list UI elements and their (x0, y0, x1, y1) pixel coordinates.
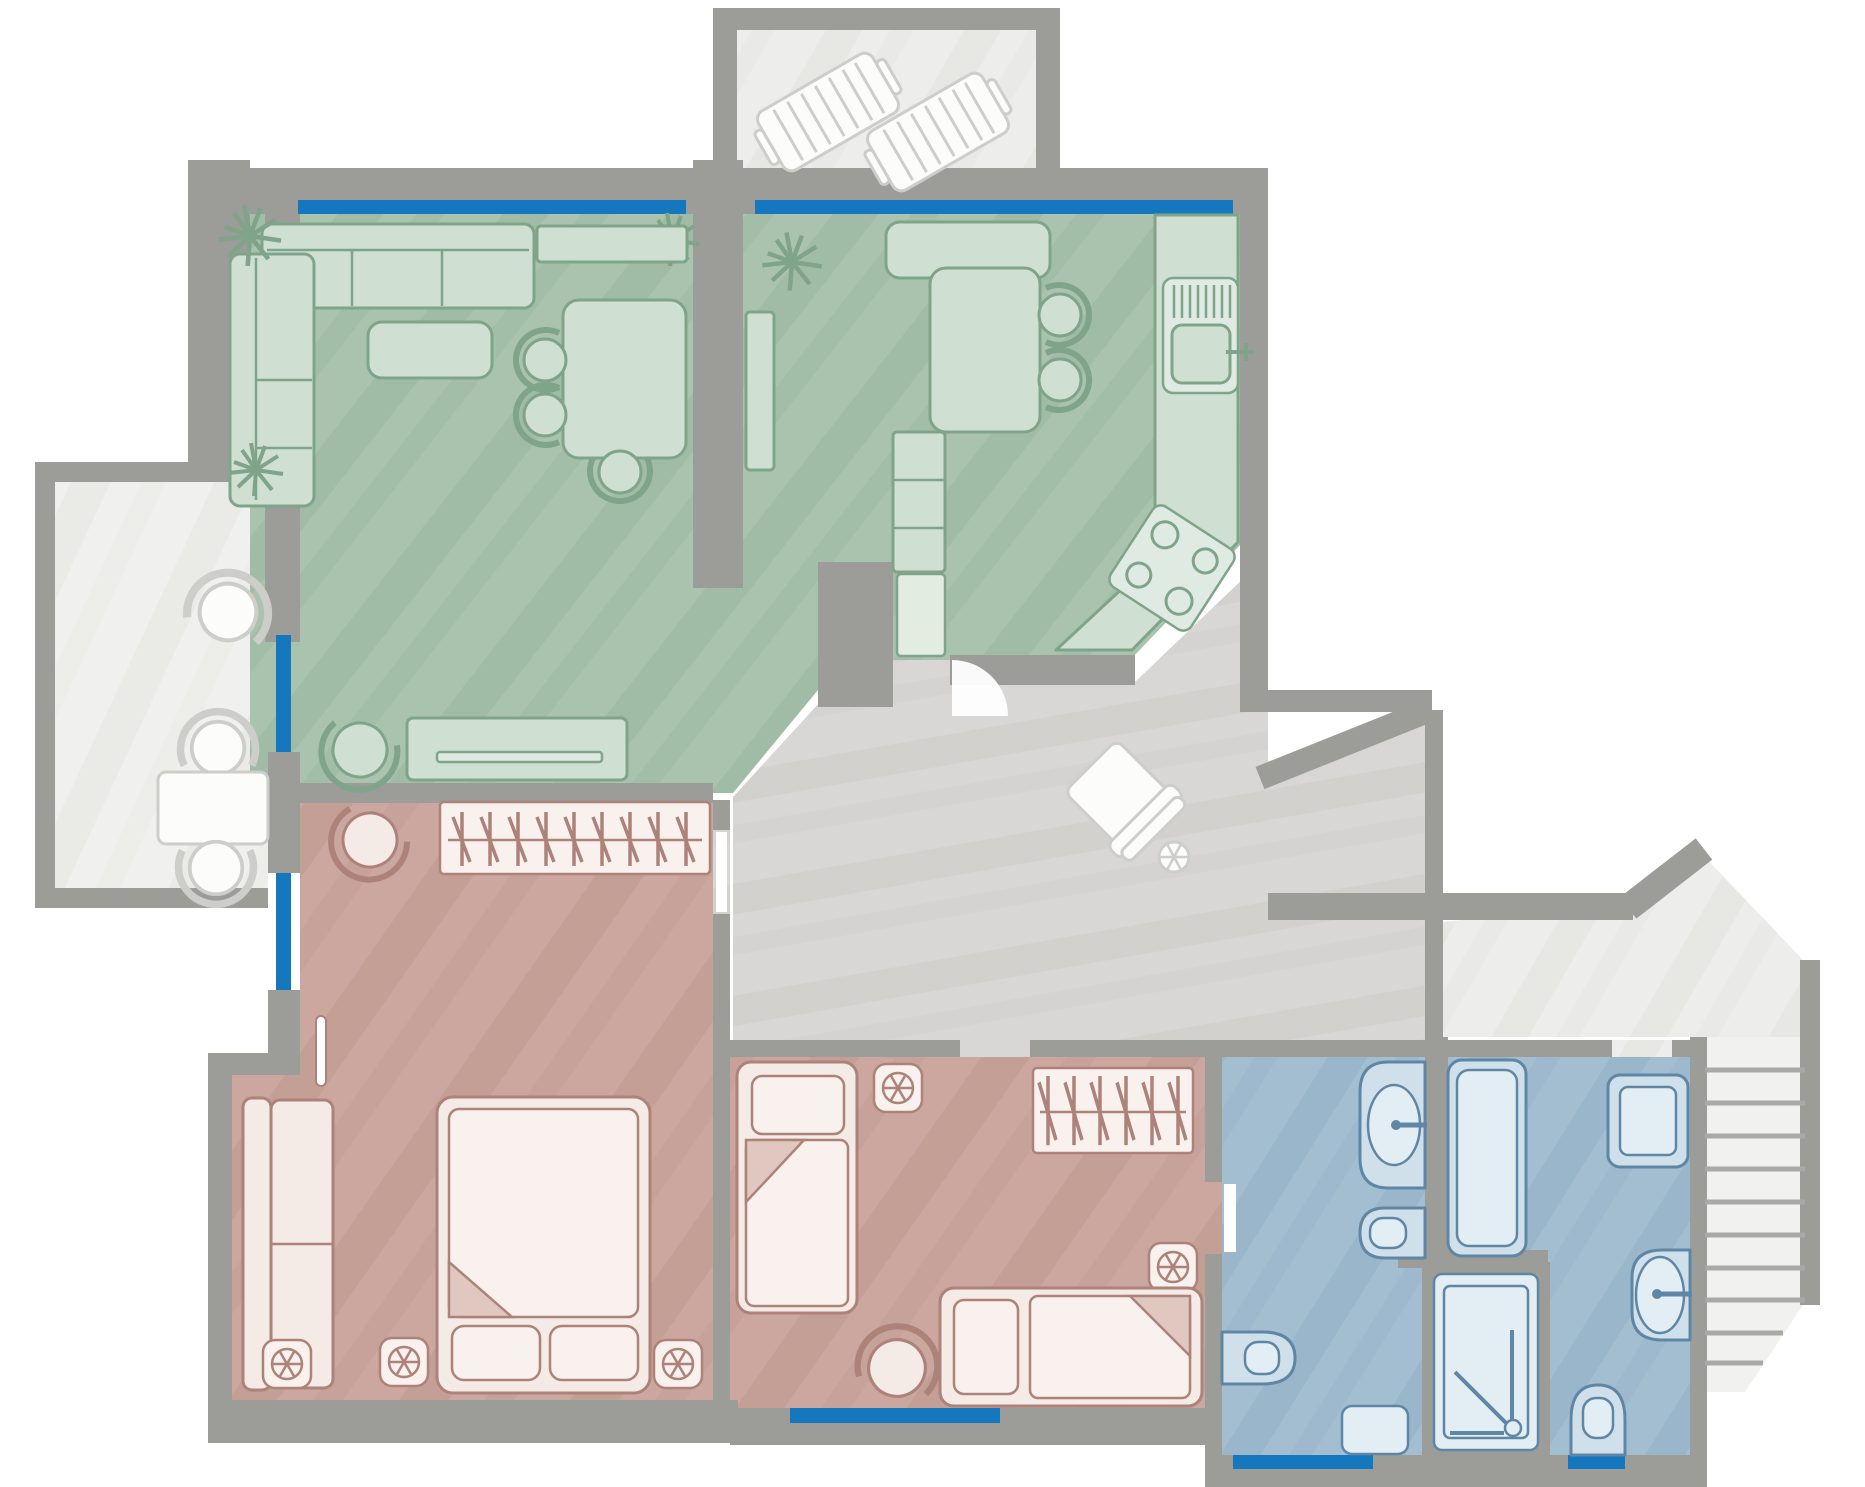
window-bathroom2-bottom (1568, 1455, 1625, 1469)
balcony-table[interactable] (158, 772, 268, 844)
hall-vent-fan (1159, 842, 1189, 872)
faucet-knob-1 (1391, 1120, 1401, 1130)
master-radiator (316, 1016, 326, 1086)
kitchen-base-cabinets[interactable] (893, 432, 945, 572)
bedroom2-wardrobe[interactable] (1033, 1068, 1193, 1153)
master-double-bed[interactable] (437, 1097, 650, 1393)
kitchen-bar-table[interactable] (930, 268, 1040, 432)
washing-machine-door (1620, 1087, 1676, 1155)
window-bathroom1-bottom (1233, 1455, 1373, 1469)
single-bed-1[interactable] (737, 1062, 857, 1313)
kitchen-tall-cabinet[interactable] (746, 312, 774, 470)
bidet-seat (1245, 1342, 1279, 1374)
floor-plan (0, 0, 1865, 1487)
bathroom-1-door-opening (1205, 1182, 1222, 1254)
pillow-1 (452, 1326, 540, 1380)
shower-cabin[interactable] (1422, 1262, 1550, 1462)
bedroom2-vent-2 (1149, 1243, 1197, 1291)
window-bedroom2-bottom (790, 1408, 1000, 1423)
pillow (954, 1300, 1018, 1394)
window-kitchen-top (755, 200, 1233, 214)
sink-basin (1172, 325, 1230, 383)
coffee-table[interactable] (368, 322, 492, 378)
bedroom-2-door-opening (960, 1040, 1030, 1057)
bathtub-inner (1457, 1070, 1517, 1246)
single-bed-2[interactable] (940, 1288, 1202, 1406)
pillow-2 (550, 1326, 638, 1380)
shower-tray-inner (1444, 1286, 1528, 1438)
bedroom2-vent-1 (874, 1064, 922, 1112)
toilet-1-seat (1370, 1218, 1406, 1248)
kitchen-door-leaf[interactable] (897, 574, 945, 656)
pillow (752, 1076, 844, 1134)
wardrobe-hangers (453, 812, 694, 866)
window-living-left (276, 635, 291, 752)
dining-table[interactable] (563, 300, 686, 458)
bath-mat (1342, 1406, 1408, 1454)
window-master-left (276, 873, 291, 990)
bathroom1-door-leaf[interactable] (1224, 1184, 1236, 1252)
master-door-leaf[interactable] (716, 832, 727, 912)
tv-unit[interactable] (407, 718, 627, 780)
sideboard-top[interactable] (537, 226, 687, 262)
master-vent-1 (263, 1340, 311, 1388)
master-vent-3 (654, 1340, 702, 1388)
shower-drain (1505, 1420, 1521, 1436)
tv (437, 752, 602, 762)
toilet-2-seat (1583, 1398, 1613, 1438)
master-vent-2 (380, 1338, 428, 1386)
window-living-top (298, 200, 686, 214)
bathroom-2-door-opening (1612, 1040, 1672, 1057)
faucet-knob-2 (1652, 1289, 1662, 1299)
